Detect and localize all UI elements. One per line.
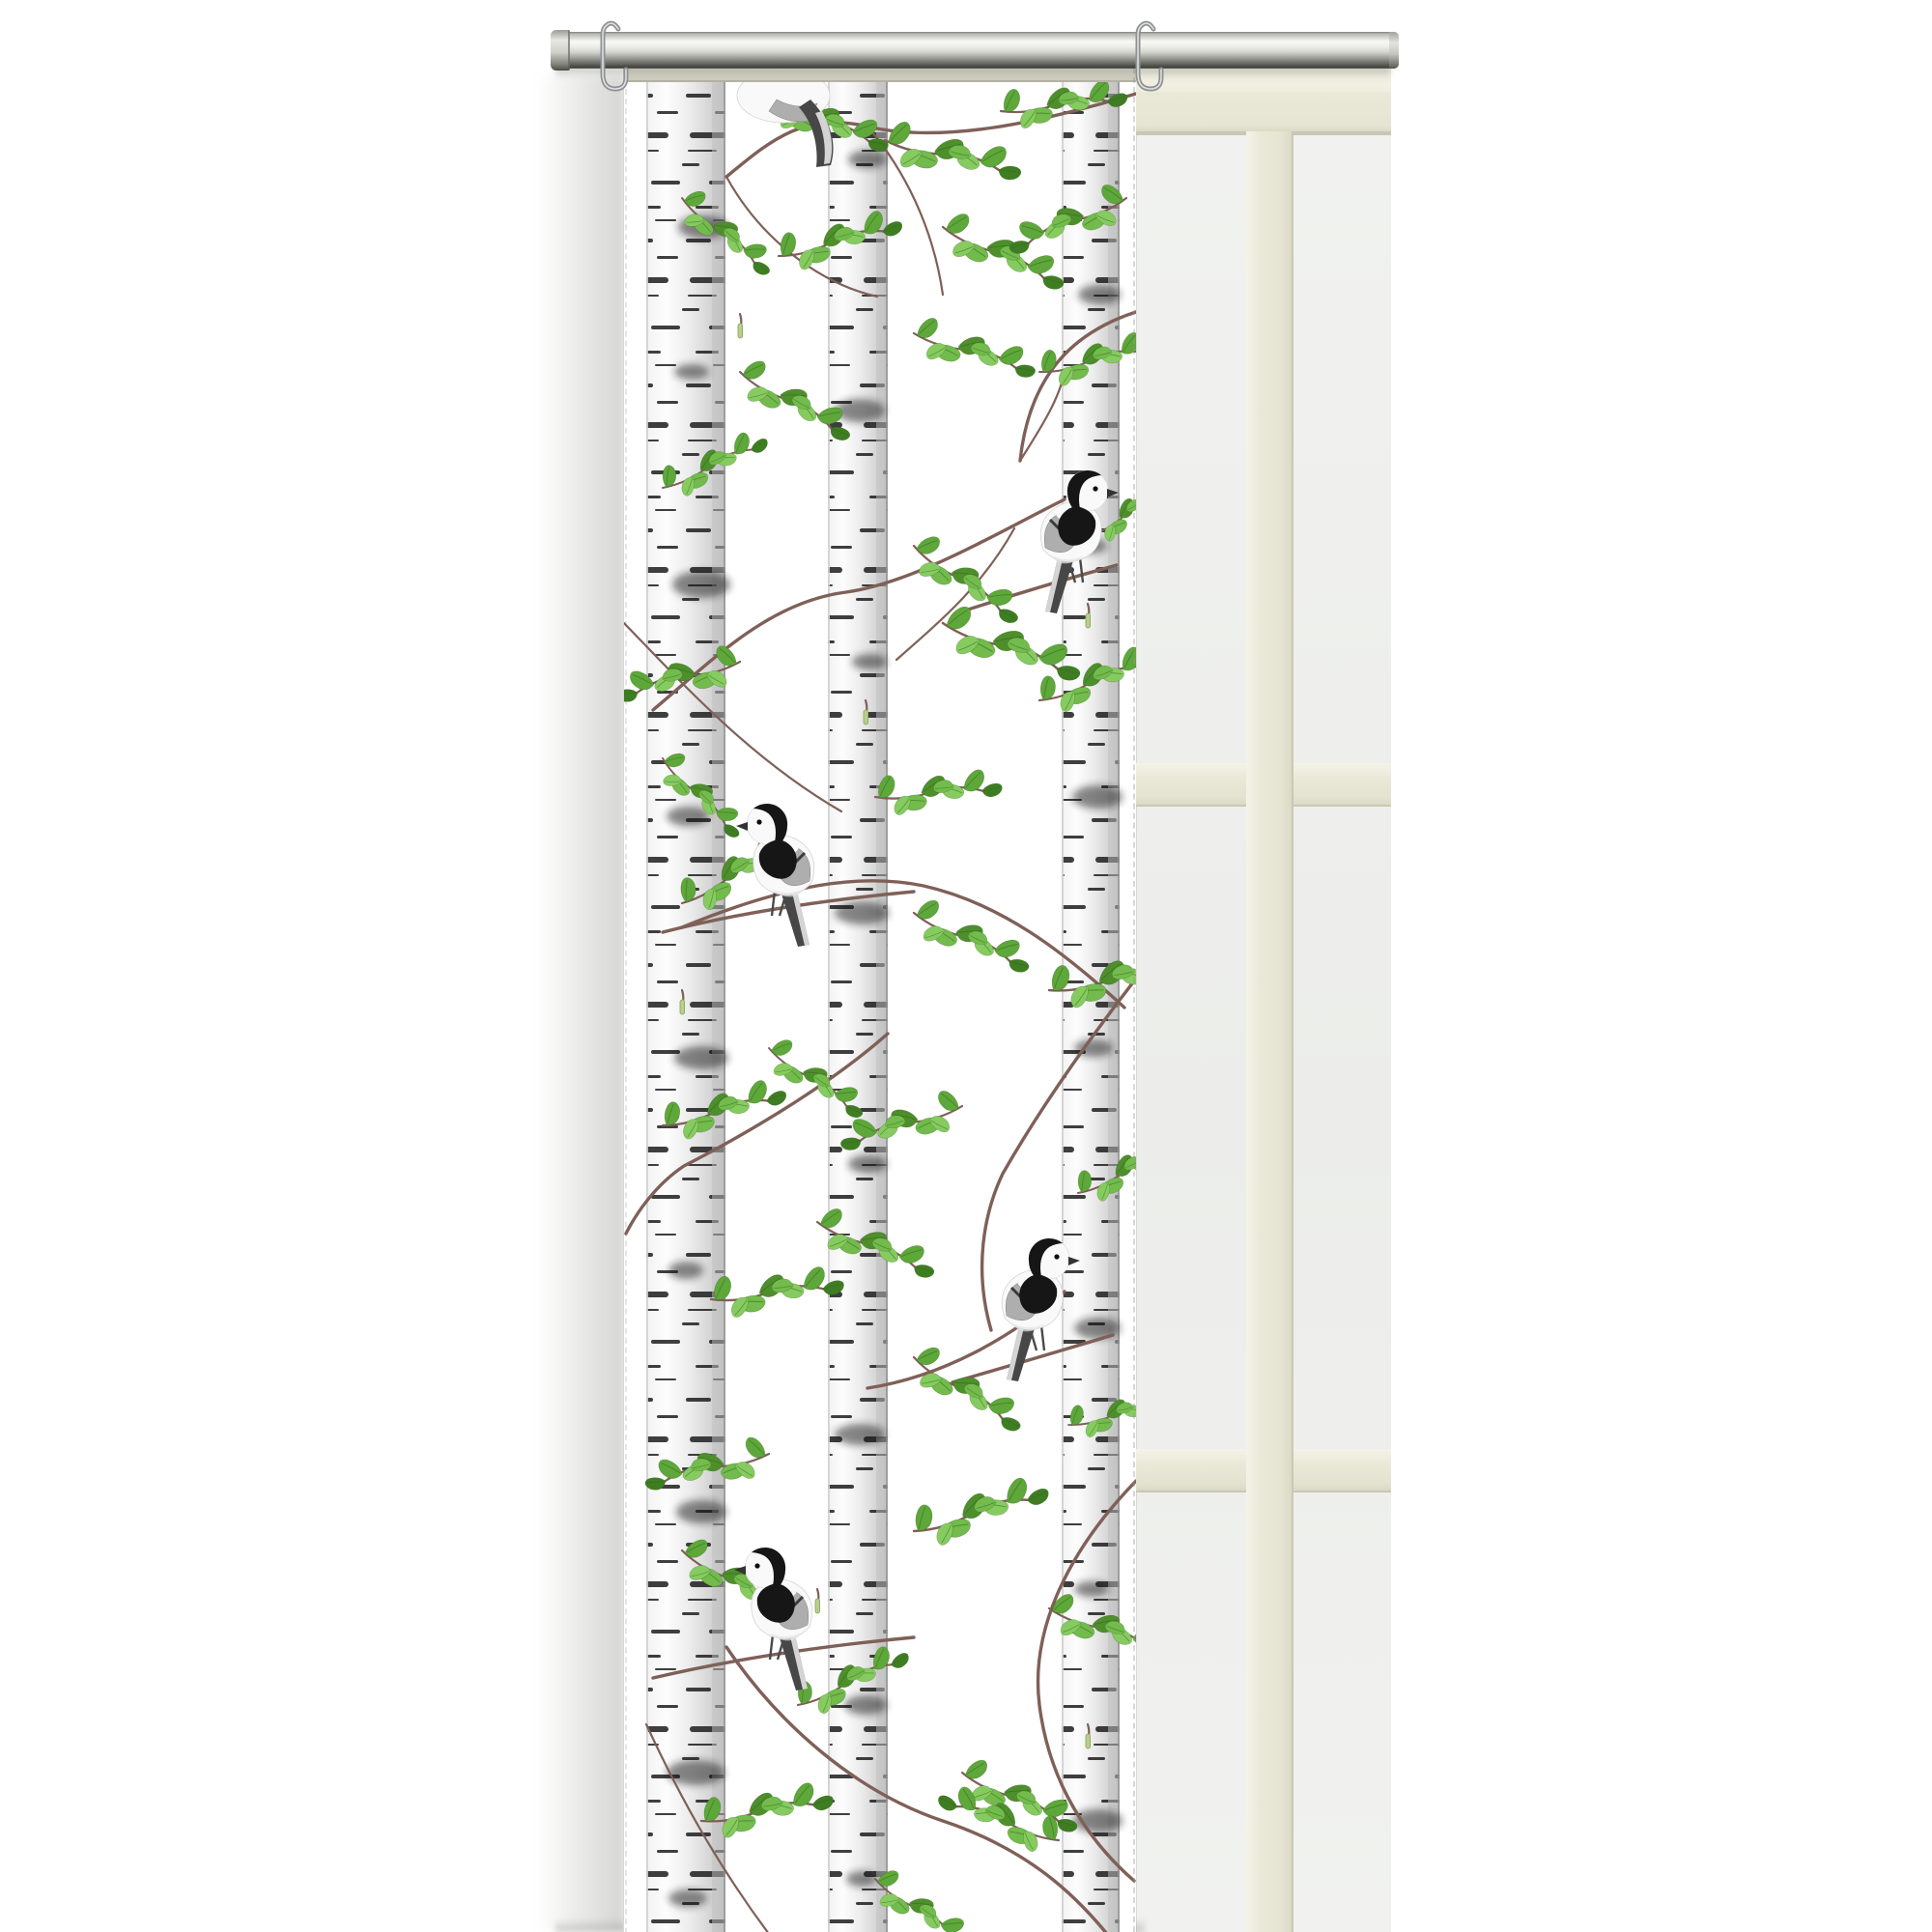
panel-curtain [623,68,1136,1932]
curtain-drop-shadow [537,75,626,1932]
curtain-rod [553,32,1399,69]
rod-right-end [1389,32,1399,69]
curtain-hook-left [591,19,634,100]
bird-bottom-left [734,1548,812,1690]
birch-pattern [624,82,1136,1932]
window-top-bar [1135,92,1391,131]
window-frame [1135,65,1391,1932]
scene [0,0,1932,1932]
curtain-hook-right [1126,19,1169,100]
rod-left-end-cap [551,30,570,71]
birch-trunk-left [646,82,730,1932]
window-vertical-mullion [1246,131,1293,1932]
bird-middle-left [736,804,814,947]
